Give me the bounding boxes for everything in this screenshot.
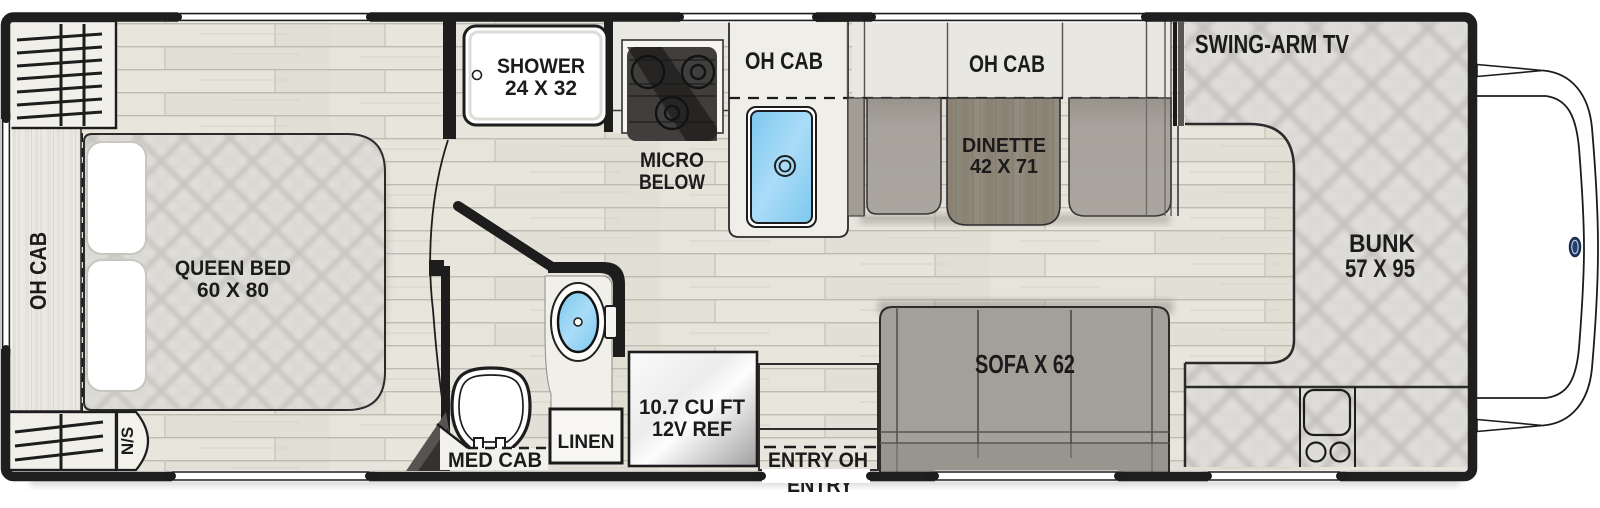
svg-text:DINETTE: DINETTE — [962, 135, 1046, 157]
svg-text:OH CAB: OH CAB — [745, 48, 823, 75]
svg-text:BELOW: BELOW — [639, 171, 705, 194]
svg-text:BUNK: BUNK — [1349, 230, 1415, 258]
svg-text:SWING-ARM TV: SWING-ARM TV — [1195, 29, 1350, 59]
svg-text:OH CAB: OH CAB — [969, 51, 1045, 78]
svg-text:24 X 32: 24 X 32 — [505, 77, 577, 100]
svg-text:QUEEN BED: QUEEN BED — [175, 257, 291, 280]
svg-text:57 X 95: 57 X 95 — [1345, 255, 1415, 283]
svg-text:10.7 CU FT: 10.7 CU FT — [639, 396, 745, 419]
svg-text:12V REF: 12V REF — [652, 418, 732, 441]
svg-text:MICRO: MICRO — [640, 149, 704, 172]
svg-text:OH CAB: OH CAB — [25, 232, 51, 310]
svg-text:ENTRY OH: ENTRY OH — [768, 449, 868, 472]
svg-text:60 X 80: 60 X 80 — [197, 279, 269, 302]
svg-text:SHOWER: SHOWER — [497, 55, 585, 78]
svg-text:42 X 71: 42 X 71 — [970, 156, 1038, 178]
svg-text:N/S: N/S — [118, 427, 137, 455]
svg-text:SOFA X 62: SOFA X 62 — [975, 349, 1075, 379]
svg-text:LINEN: LINEN — [558, 432, 615, 453]
svg-text:MED CAB: MED CAB — [448, 449, 542, 472]
